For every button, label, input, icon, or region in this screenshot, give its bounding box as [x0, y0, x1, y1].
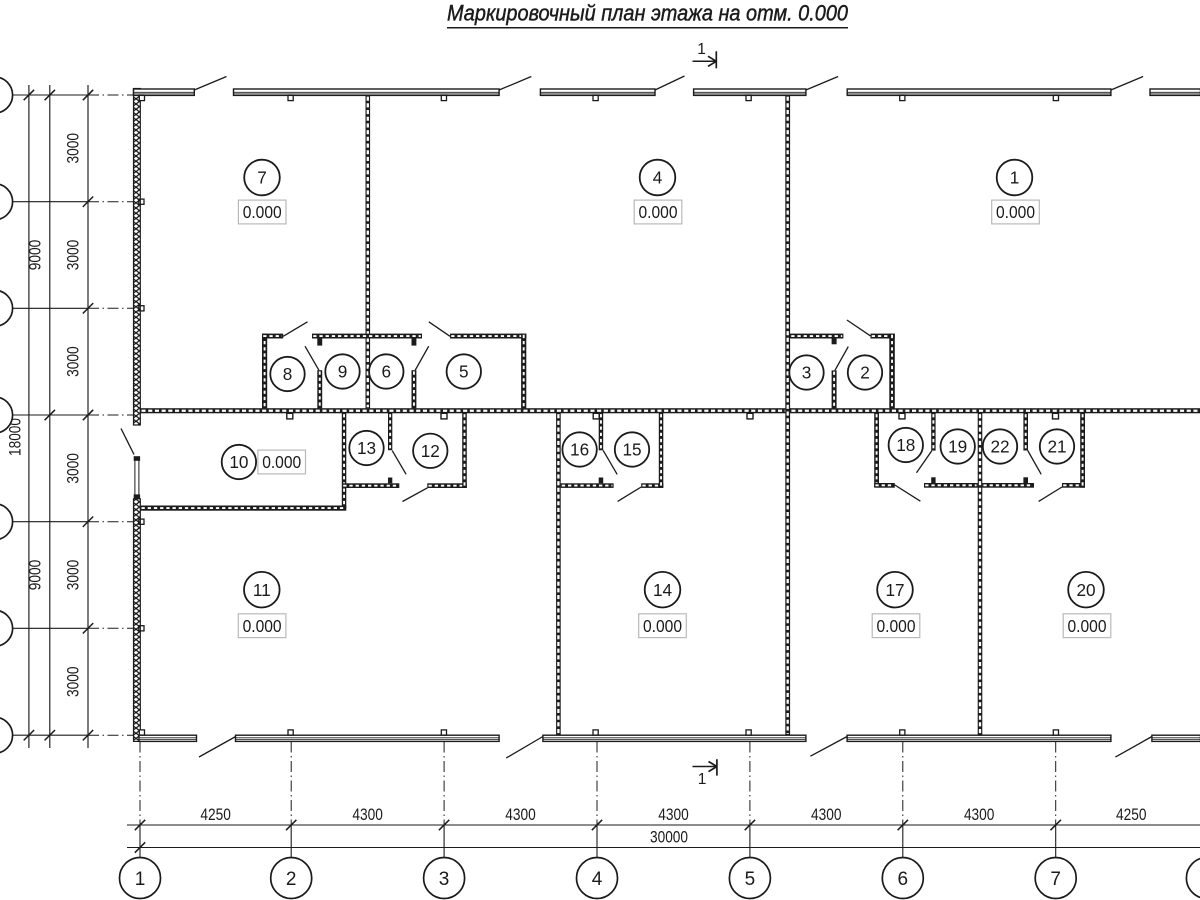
- svg-text:1: 1: [135, 869, 146, 890]
- svg-text:0.000: 0.000: [639, 202, 678, 222]
- svg-text:3000: 3000: [64, 240, 83, 271]
- svg-text:2: 2: [860, 363, 870, 383]
- svg-text:20: 20: [1076, 580, 1095, 600]
- svg-text:8: 8: [283, 364, 293, 384]
- svg-text:0.000: 0.000: [1068, 616, 1107, 636]
- svg-text:0.000: 0.000: [877, 616, 916, 636]
- svg-text:4300: 4300: [505, 805, 536, 824]
- svg-text:4300: 4300: [352, 805, 383, 824]
- svg-text:17: 17: [885, 580, 904, 600]
- svg-text:13: 13: [357, 438, 376, 458]
- svg-text:21: 21: [1047, 437, 1066, 457]
- svg-text:4250: 4250: [200, 805, 231, 824]
- svg-text:Маркировочный план этажа на от: Маркировочный план этажа на отм. 0.000: [447, 1, 849, 26]
- svg-text:30000: 30000: [650, 828, 688, 847]
- svg-text:19: 19: [948, 437, 967, 457]
- svg-text:3000: 3000: [64, 453, 83, 484]
- svg-text:15: 15: [622, 440, 641, 460]
- svg-text:9000: 9000: [26, 240, 45, 271]
- svg-text:4300: 4300: [964, 805, 995, 824]
- svg-text:14: 14: [653, 580, 673, 600]
- svg-text:6: 6: [382, 362, 392, 382]
- svg-text:6: 6: [898, 869, 909, 890]
- svg-text:7: 7: [1050, 869, 1061, 890]
- svg-text:1: 1: [698, 771, 707, 788]
- svg-text:16: 16: [570, 440, 589, 460]
- svg-text:5: 5: [745, 869, 756, 890]
- svg-text:1: 1: [1010, 168, 1020, 188]
- svg-text:3000: 3000: [64, 667, 83, 698]
- svg-text:3: 3: [439, 869, 450, 890]
- svg-text:18: 18: [896, 435, 915, 455]
- svg-text:22: 22: [990, 437, 1009, 457]
- svg-text:11: 11: [253, 580, 271, 600]
- svg-text:4: 4: [653, 168, 663, 188]
- svg-text:1: 1: [697, 41, 706, 58]
- svg-text:4300: 4300: [811, 805, 842, 824]
- svg-text:0.000: 0.000: [262, 452, 301, 472]
- svg-text:4250: 4250: [1116, 805, 1147, 824]
- svg-text:3000: 3000: [64, 346, 83, 377]
- svg-text:10: 10: [229, 452, 248, 472]
- svg-text:0.000: 0.000: [643, 616, 682, 636]
- svg-text:0.000: 0.000: [996, 202, 1035, 222]
- svg-text:3000: 3000: [64, 133, 83, 164]
- svg-text:5: 5: [459, 362, 469, 382]
- svg-text:4300: 4300: [658, 805, 689, 824]
- svg-text:0.000: 0.000: [243, 202, 282, 222]
- svg-text:2: 2: [286, 869, 297, 890]
- svg-text:9000: 9000: [26, 560, 45, 591]
- svg-text:3000: 3000: [64, 560, 83, 591]
- svg-text:3: 3: [802, 363, 812, 383]
- svg-text:12: 12: [421, 441, 440, 461]
- svg-text:0.000: 0.000: [243, 616, 282, 636]
- svg-text:4: 4: [592, 869, 603, 890]
- svg-text:9: 9: [338, 362, 348, 382]
- svg-text:7: 7: [257, 168, 267, 188]
